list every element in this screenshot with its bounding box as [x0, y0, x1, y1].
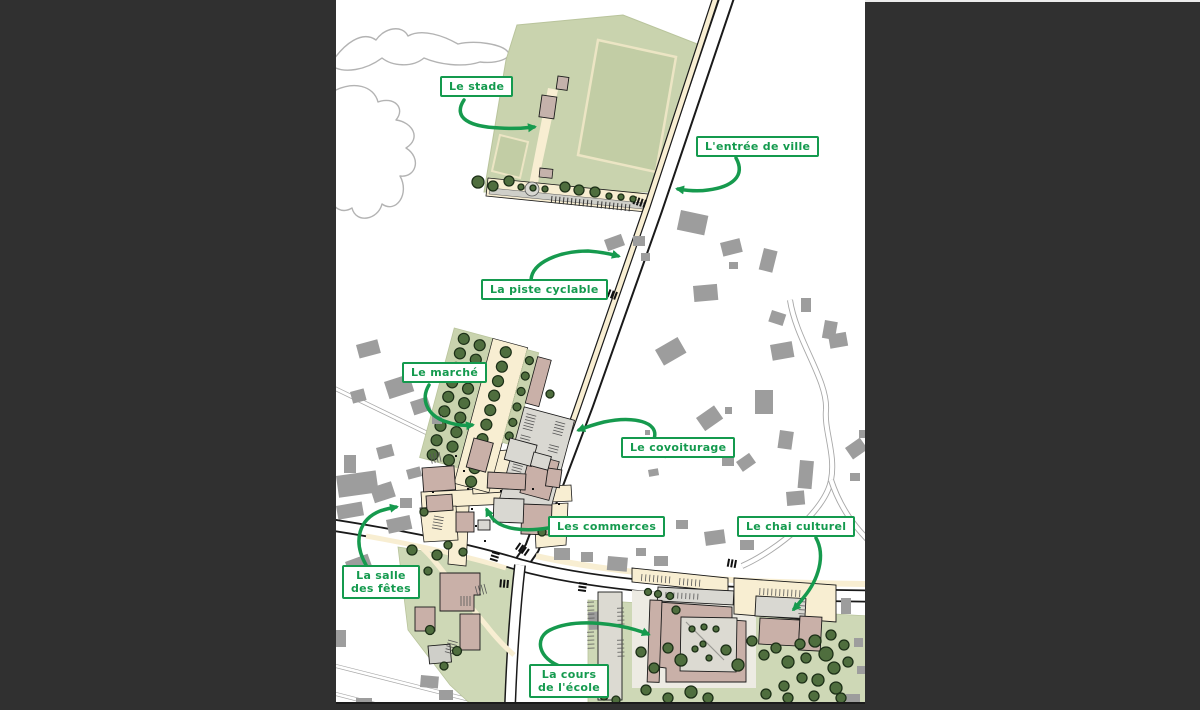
label-cours-ecole-line2: de l'école [538, 681, 600, 694]
label-entree-de-ville: L'entrée de ville [696, 136, 819, 157]
label-salle-des-fetes: La salle des fêtes [342, 565, 420, 599]
label-chai-culturel: Le chai culturel [737, 516, 855, 537]
terrain-contour [336, 29, 509, 218]
label-marche: Le marché [402, 362, 487, 383]
label-piste-cyclable: La piste cyclable [481, 279, 608, 300]
label-salle-des-fetes-line1: La salle [351, 569, 411, 582]
label-cours-ecole: La cours de l'école [529, 664, 609, 698]
label-covoiturage: Le covoiturage [621, 437, 735, 458]
label-salle-des-fetes-line2: des fêtes [351, 582, 411, 595]
label-stade: Le stade [440, 76, 513, 97]
masterplan-map: Le stade L'entrée de ville La piste cycl… [336, 0, 865, 704]
entree-arrow [678, 158, 739, 191]
label-commerces: Les commerces [548, 516, 665, 537]
piste-arrow [531, 251, 618, 280]
label-cours-ecole-line1: La cours [538, 668, 600, 681]
